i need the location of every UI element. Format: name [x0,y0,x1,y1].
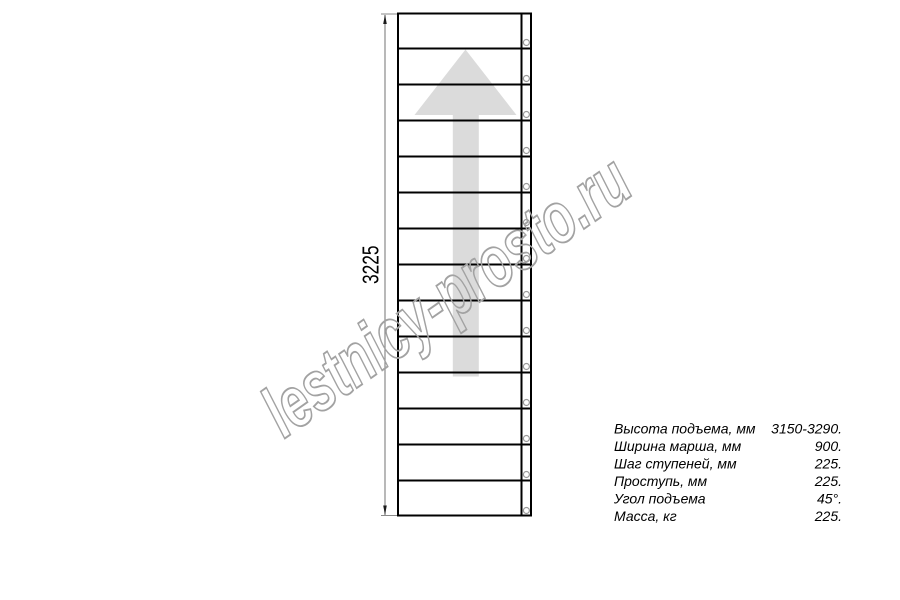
svg-text:Угол подъема: Угол подъема [613,491,706,507]
svg-text:225.: 225. [814,508,842,524]
svg-text:Проступь, мм: Проступь, мм [614,473,708,489]
svg-text:3225: 3225 [358,246,384,285]
svg-text:Шаг ступеней, мм: Шаг ступеней, мм [614,456,737,472]
svg-text:Ширина марша, мм: Ширина марша, мм [614,438,742,454]
svg-text:Масса, кг: Масса, кг [614,508,677,524]
svg-text:225.: 225. [814,473,842,489]
svg-text:900.: 900. [815,438,842,454]
svg-text:Высота подъема, мм: Высота подъема, мм [614,421,756,437]
svg-text:3150-3290.: 3150-3290. [771,421,842,437]
svg-text:225.: 225. [814,456,842,472]
svg-text:45°.: 45°. [817,491,842,507]
